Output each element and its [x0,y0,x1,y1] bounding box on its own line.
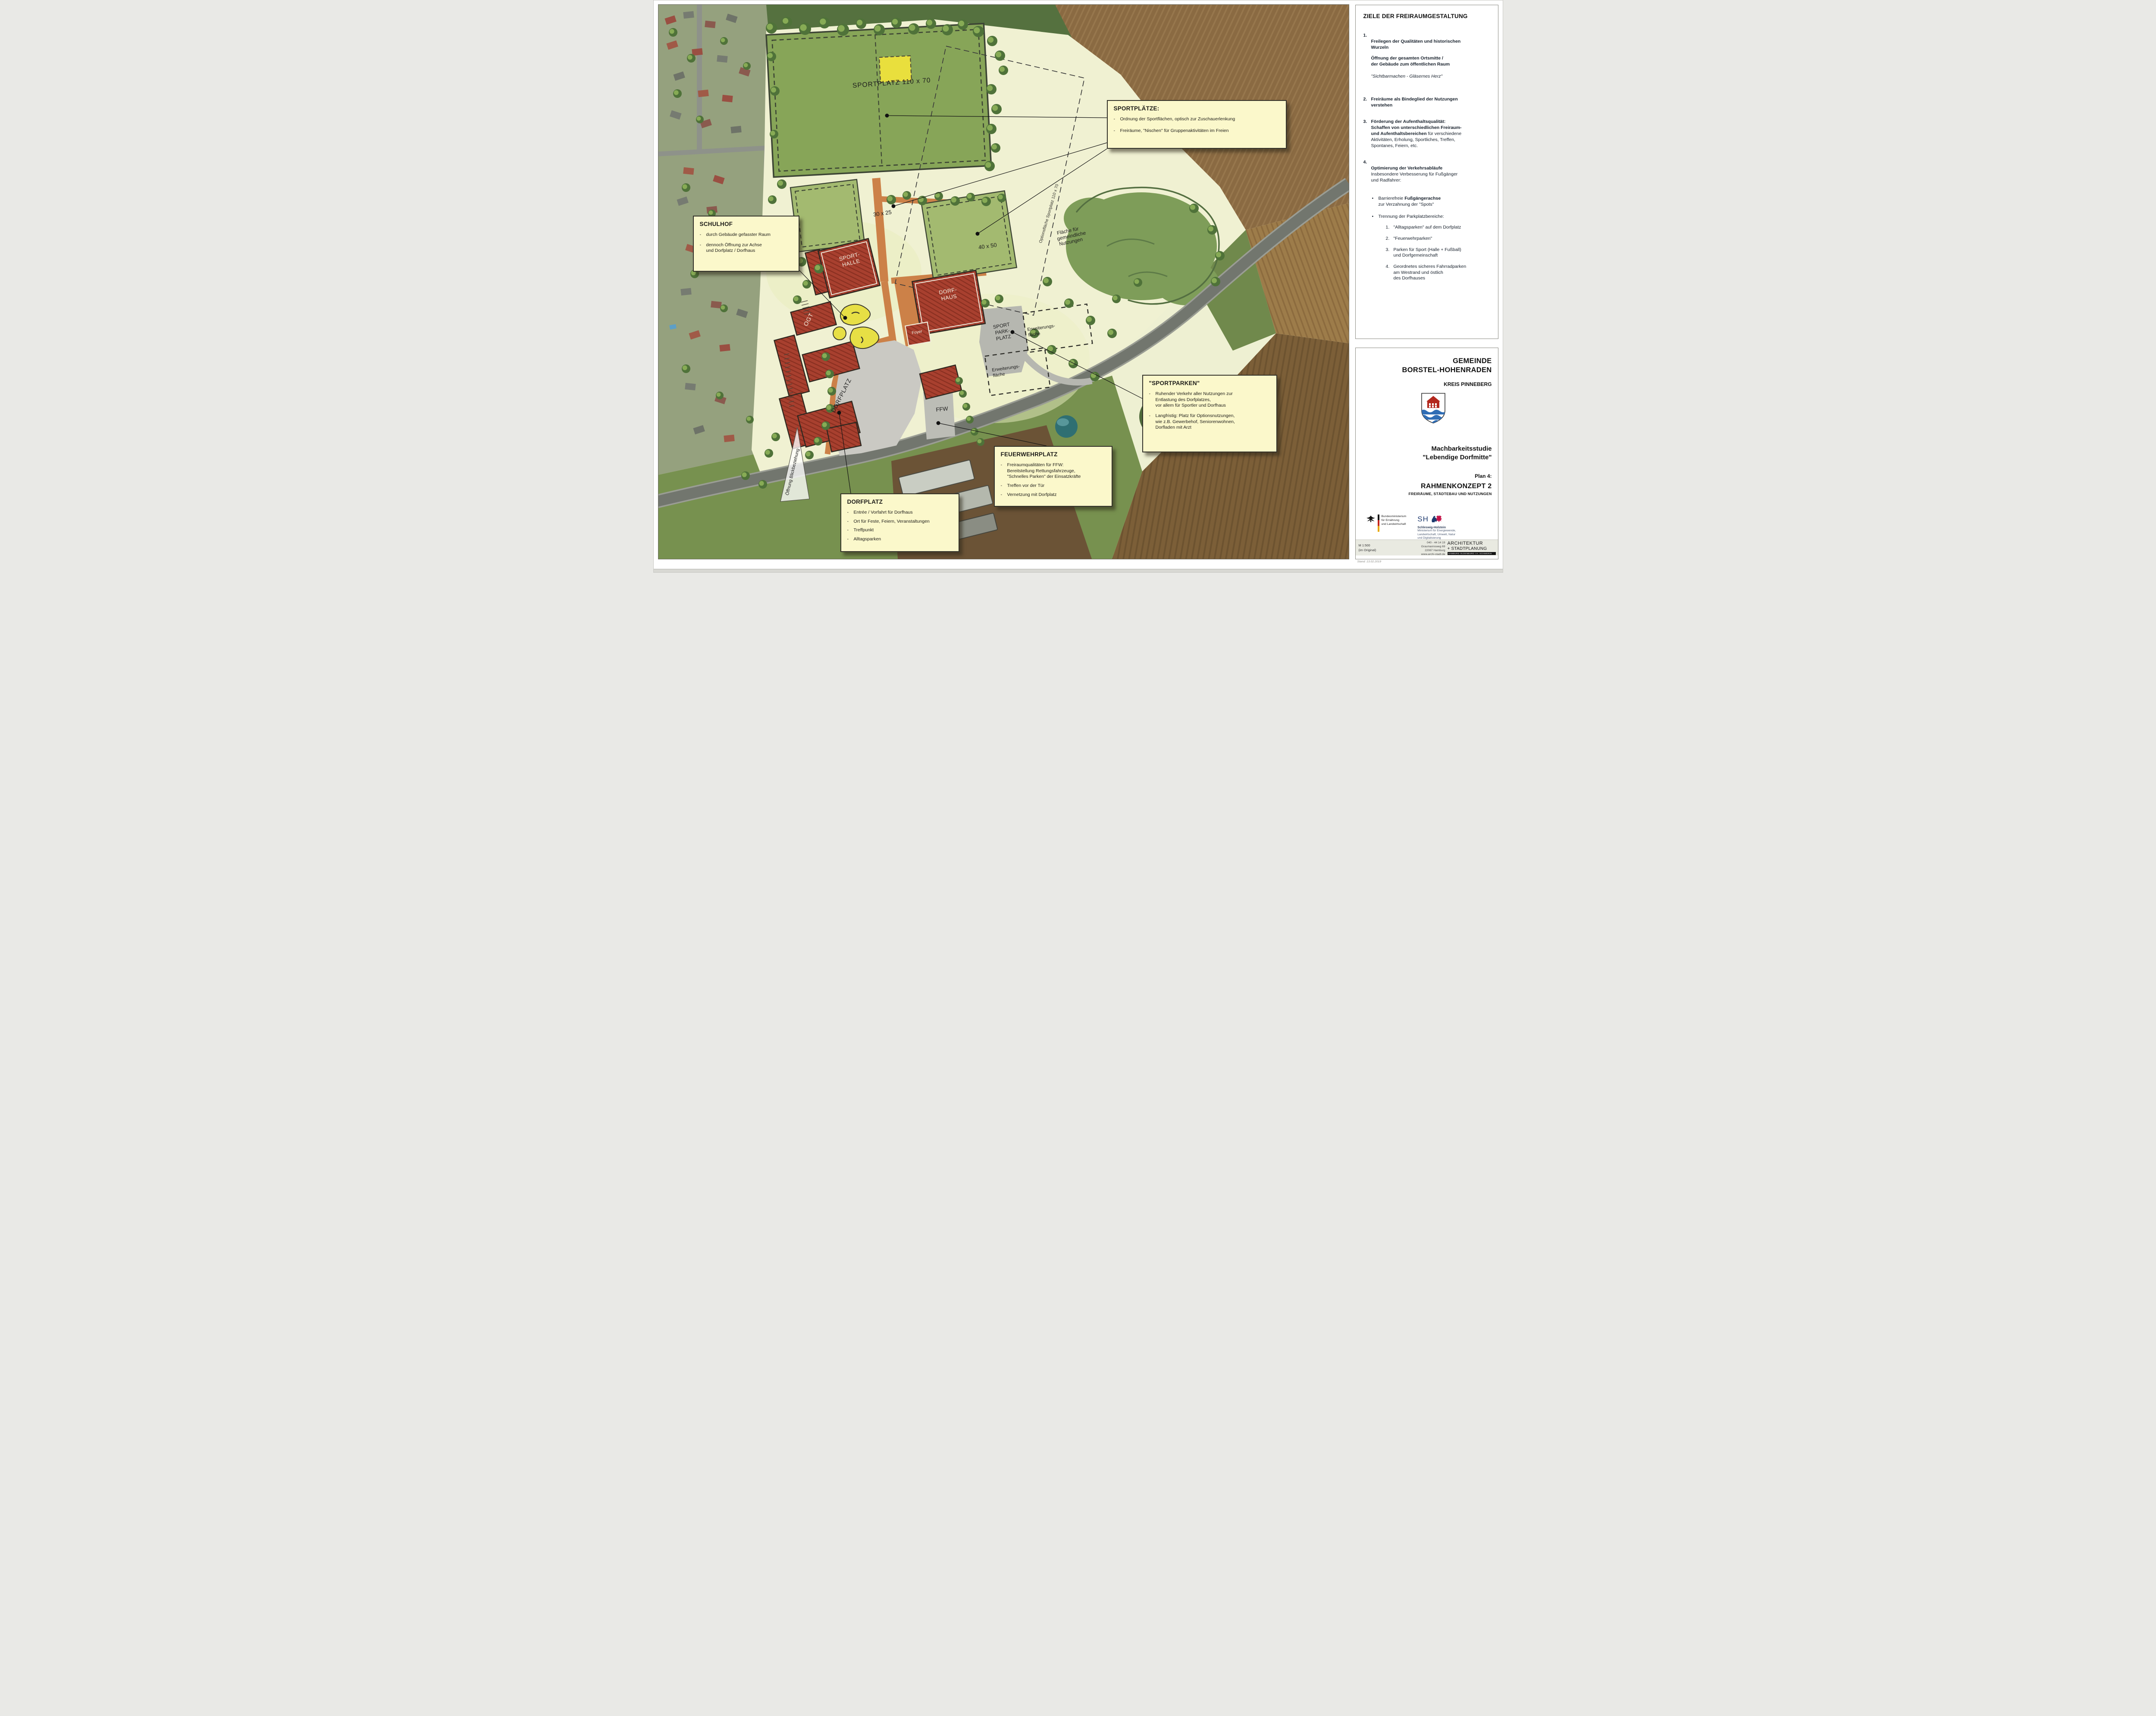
tree-icon [958,19,968,30]
tree-icon [765,449,773,458]
field-40x50 [921,191,1017,280]
tree-icon [986,124,997,134]
tree-icon [962,403,970,411]
tree-icon [995,50,1005,61]
tree-icon [782,17,792,27]
site-plan-map: SPORTPLATZ 110 x 70 30 x 25 40 x 50 SPOR… [658,4,1349,559]
tree-icon [720,304,728,312]
tree-icon [827,387,836,395]
tree-icon [966,193,975,201]
title-block: GEMEINDE BORSTEL-HOHENRADEN KREIS PINNEB… [1355,348,1498,559]
tree-icon [743,62,751,70]
tree-icon [995,295,1003,303]
plan-date: Stand: 13.02.2019 [1357,560,1382,563]
tree-icon [771,433,780,441]
field-30x25 [790,179,865,252]
tree-icon [1043,277,1052,286]
goal-item-2: 2. Freiräume als Bindeglied der Nutzunge… [1363,96,1491,108]
tree-icon [819,17,830,28]
tree-icon [977,438,984,446]
tree-icon [716,392,724,399]
tricolor-bar [1378,514,1379,532]
house-roof [705,21,715,28]
tree-icon [1134,278,1142,287]
house-roof [680,288,691,295]
tree-icon [955,377,963,385]
tree-icon [758,480,767,489]
tree-icon [874,24,885,35]
goal-item-1: 1. Freilegen der Qualitäten und historis… [1363,32,1491,86]
goal-item-4: 4. Optimierung der Verkehrsabläufe Insbe… [1363,159,1491,189]
federal-eagle-icon [1366,514,1376,524]
tree-icon [959,390,967,398]
tree-icon [793,295,802,304]
goals-title: ZIELE DER FREIRAUMGESTALTUNG [1363,13,1491,19]
tree-icon [770,130,778,138]
tree-icon [696,116,704,123]
tree-icon [918,196,927,205]
tree-icon [856,19,866,29]
schleswig-holstein-logo: SH Schleswig-Holstein Ministerium für En… [1417,514,1456,540]
note-title: "SPORTPARKEN" [1149,380,1270,386]
tree-icon [999,66,1008,75]
tree-icon [1215,251,1225,260]
tree-icon [821,352,830,361]
tree-icon [981,197,991,206]
house-roof [683,11,694,19]
house-roof [719,344,730,351]
plan-sheet: SPORTPLATZ 110 x 70 30 x 25 40 x 50 SPOR… [653,0,1503,573]
label-ffw: FFW [935,405,948,413]
tree-icon [1112,295,1121,303]
scale-label: M 1:500 (im Original) [1359,543,1376,552]
konzept-subtitle: FREIRÄUME, STÄDTEBAU UND NUTZUNGEN [1409,492,1492,496]
sh-lion-nettle-icon [1430,514,1443,524]
tree-icon [821,421,830,430]
house-roof [683,167,694,175]
architect-contact: 040 - 44 14 19 Graumannsweg 69 22087 Ham… [1421,541,1445,557]
tree-icon [942,24,953,35]
house-roof [711,301,721,308]
tree-icon [1047,345,1056,354]
tree-icon [682,364,690,373]
tree-icon [934,192,943,201]
note-title: SCHULHOF [700,221,793,227]
tree-icon [746,416,754,424]
note-dorfplatz: DORFPLATZ -Entrée / Vorfahrt für Dorfhau… [840,493,959,552]
note-title: FEUERWEHRPLATZ [1001,451,1106,458]
house-roof [685,383,696,390]
note-schulhof: SCHULHOF -durch Gebäude gefasster Raum -… [693,216,799,272]
tree-icon [987,36,997,46]
tree-icon [1207,225,1217,235]
tree-icon [766,22,777,34]
tree-icon [814,264,824,273]
tree-icon [1064,298,1074,308]
sheet-edge [654,569,1503,572]
goal-item-3: 3. Förderung der Aufenthaltsqualität: Sc… [1363,119,1491,149]
tree-icon [986,84,997,94]
tree-icon [997,194,1006,202]
tree-icon [825,370,834,378]
tree-icon [984,161,995,171]
house-roof [722,95,733,102]
tree-icon [673,89,682,98]
tree-icon [887,195,896,204]
tree-icon [966,416,974,424]
tree-icon [768,195,777,204]
biogas-dome [1055,415,1078,438]
sportplatz-field [766,24,991,177]
house-roof [730,126,741,133]
tree-icon [814,437,822,445]
tree-icon [1069,359,1078,368]
house-roof [698,90,708,97]
tree-icon [991,143,1000,153]
goal-bullet-2: • Trennung der Parkplatzbereiche: [1372,213,1491,220]
tree-icon [741,471,750,480]
tree-icon [981,299,990,307]
goal-bullet-1: • Barrierefreie Fußgängerachsezur Verzah… [1372,195,1491,207]
tree-icon [687,54,696,63]
tree-icon [891,18,902,28]
tree-icon [971,428,978,436]
note-title: DORFPLATZ [847,499,953,505]
tree-icon [720,37,728,45]
architect-firm: ARCHITEKTUR + STADTPLANUNG HAMBURG OLDEN… [1448,541,1496,555]
note-sportparken: "SPORTPARKEN" -Ruhender Verkehr aller Nu… [1142,375,1277,452]
kreis-label: KREIS PINNEBERG [1402,381,1492,387]
house-roof [717,55,727,63]
note-feuerwehrplatz: FEUERWEHRPLATZ -Freiraumqualitäten für F… [994,446,1112,507]
tree-icon [991,104,1002,114]
konzept-title: RAHMENKONZEPT 2 [1421,483,1492,490]
tree-icon [926,19,936,29]
tree-icon [1189,204,1199,213]
tree-icon [777,179,787,189]
note-title: SPORTPLÄTZE: [1114,105,1280,112]
tree-icon [682,183,690,192]
tree-icon [1090,372,1100,381]
tree-icon [973,26,984,37]
tree-icon [805,451,814,459]
study-title: Machbarkeitsstudie "Lebendige Dorfmitte" [1423,445,1492,462]
tree-icon [770,86,780,96]
tree-icon [669,28,677,37]
note-sportplaetze: SPORTPLÄTZE: -Ordnung der Sportflächen, … [1107,100,1287,149]
plan-number: Plan 4: [1475,473,1492,479]
plan-footer-bar: M 1:500 (im Original) 040 - 44 14 19 Gra… [1356,540,1498,555]
tree-icon [950,196,960,206]
tree-icon [837,24,849,36]
tree-icon [1107,329,1117,338]
tree-icon [908,23,919,35]
tree-icon [903,191,911,200]
tree-icon [1211,277,1220,286]
parking-sublist: 1."Alltagsparken" auf dem Dorfplatz 2."F… [1386,225,1491,281]
tree-icon [799,23,811,35]
house-roof [724,435,734,442]
bund-ministry-logo: Bundesministerium für Ernährung und Land… [1366,514,1407,540]
gemeinde-heading: GEMEINDE BORSTEL-HOHENRADEN KREIS PINNEB… [1402,357,1492,387]
goals-panel: ZIELE DER FREIRAUMGESTALTUNG 1. Freilege… [1355,5,1498,339]
coat-of-arms [1420,392,1446,426]
tree-icon [767,52,776,61]
tree-icon [1086,316,1095,325]
